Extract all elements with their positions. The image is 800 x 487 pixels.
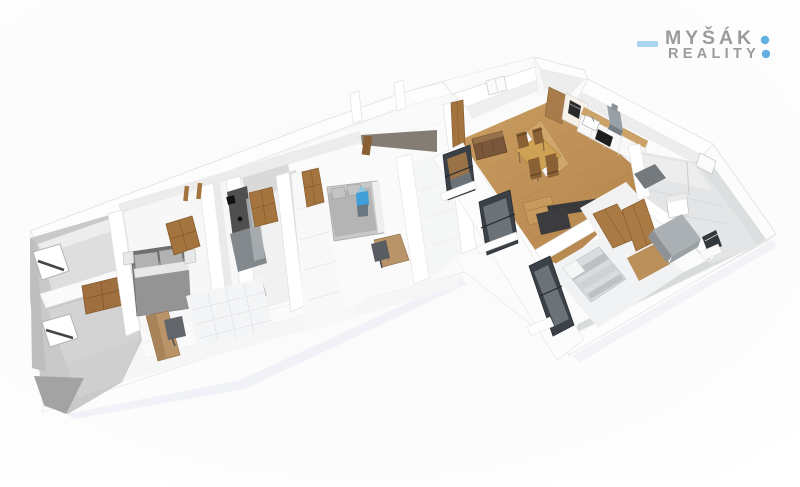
- svg-text:REALITY: REALITY: [668, 46, 760, 62]
